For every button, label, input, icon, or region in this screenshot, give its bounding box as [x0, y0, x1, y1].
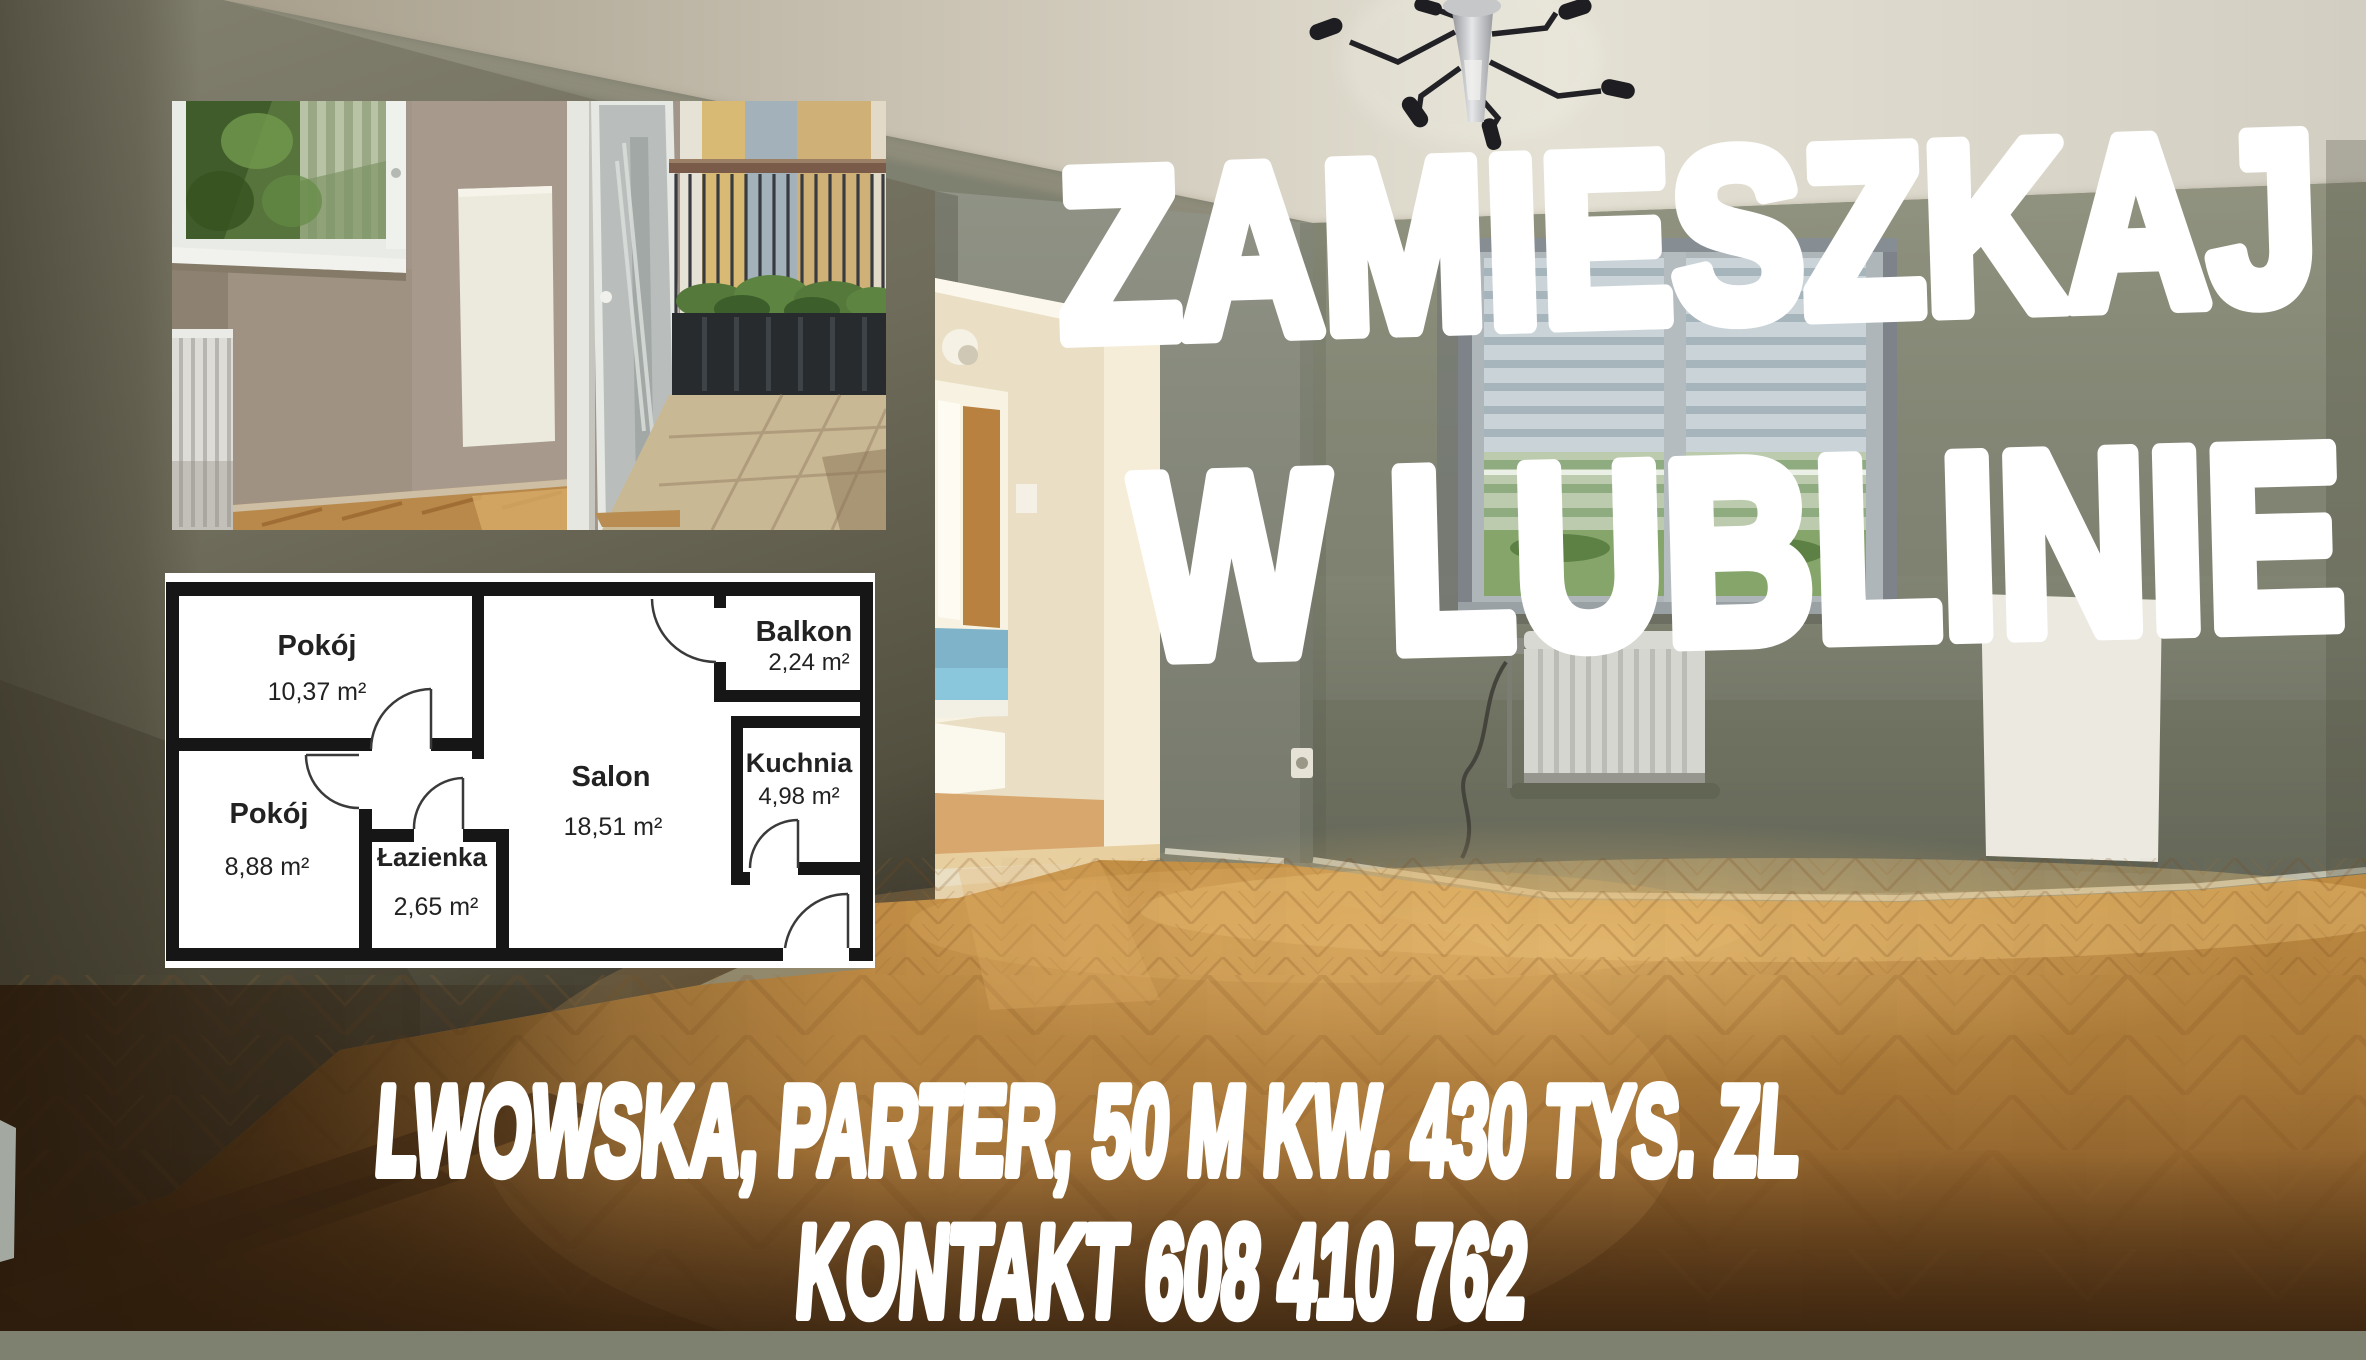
svg-text:2,65 m²: 2,65 m²	[394, 893, 479, 921]
svg-text:10,37 m²: 10,37 m²	[268, 678, 367, 706]
svg-text:8,88 m²: 8,88 m²	[225, 853, 310, 881]
svg-text:18,51 m²: 18,51 m²	[564, 813, 663, 841]
svg-text:LWOWSKA, PARTER, 50 M KW. 430: LWOWSKA, PARTER, 50 M KW. 430 TYS. ZL	[371, 1060, 1805, 1201]
svg-text:4,98 m²: 4,98 m²	[758, 783, 839, 810]
svg-text:Łazienka: Łazienka	[377, 842, 487, 872]
svg-text:Pokój: Pokój	[230, 798, 309, 830]
svg-text:W LUBLINIE: W LUBLINIE	[1130, 409, 2347, 712]
svg-text:KONTAKT 608 410 762: KONTAKT 608 410 762	[792, 1200, 1532, 1344]
svg-text:Pokój: Pokój	[278, 630, 357, 662]
svg-text:Kuchnia: Kuchnia	[746, 748, 853, 778]
svg-text:ZAMIESZKAJ: ZAMIESZKAJ	[1055, 104, 2322, 390]
svg-text:Salon: Salon	[572, 761, 651, 793]
svg-text:2,24 m²: 2,24 m²	[768, 649, 849, 676]
svg-text:Balkon: Balkon	[756, 616, 853, 648]
